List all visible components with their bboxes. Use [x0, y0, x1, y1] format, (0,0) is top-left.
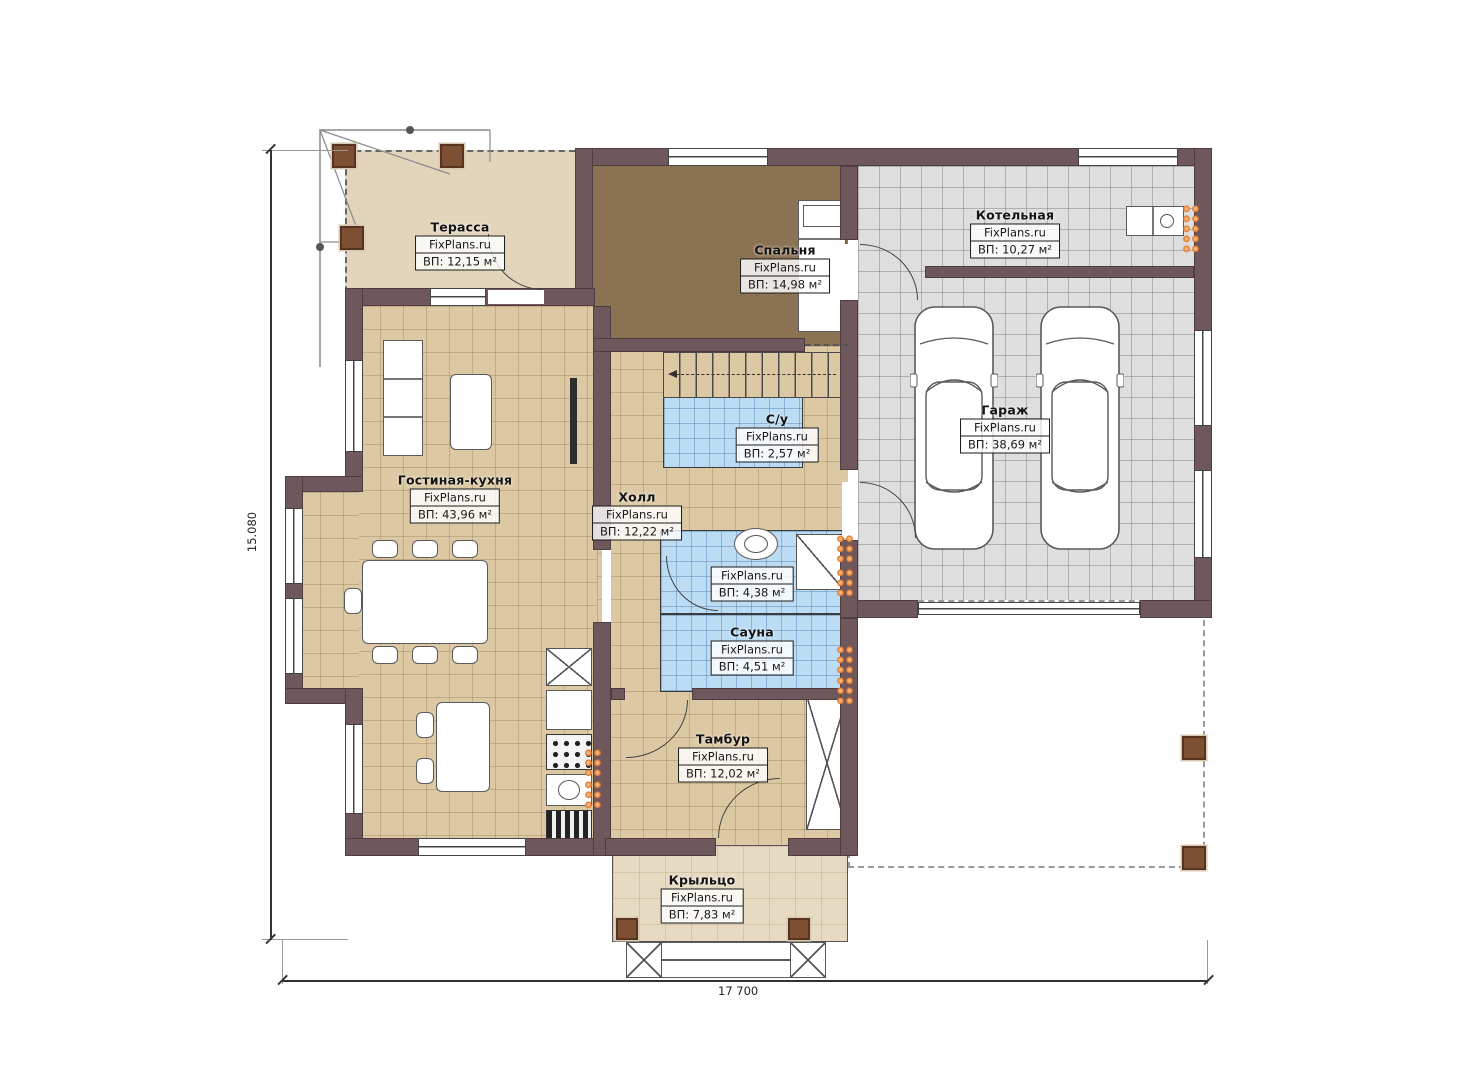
window-living-bottom [418, 838, 526, 856]
room-name: Терасса [415, 220, 505, 235]
room-label-sauna: Сауна FixPlans.ru ВП: 4,51 м² [711, 625, 794, 676]
kitchen-cabinet-x [546, 648, 592, 686]
radiator-symbol [584, 780, 602, 808]
column [440, 144, 464, 168]
sofa-cushion-line-1 [384, 378, 422, 380]
wall-core-right-b [840, 300, 858, 470]
wall-tambur-bottom-a [605, 838, 716, 856]
chair [416, 712, 434, 738]
column [1182, 736, 1206, 760]
brand-text: FixPlans.ru [741, 260, 829, 276]
brand-text: FixPlans.ru [662, 890, 743, 906]
wall-tambur-bottom-b [788, 838, 848, 856]
room-label-boiler: Котельная FixPlans.ru ВП: 10,27 м² [970, 208, 1060, 259]
radiator-symbol [836, 534, 854, 564]
wall-center-lower [593, 622, 611, 856]
room-label-terrace: Терасса FixPlans.ru ВП: 12,15 м² [415, 220, 505, 271]
staircase [663, 352, 846, 398]
window-living-left-1 [345, 360, 363, 452]
room-name: Спальня [740, 243, 830, 258]
porch-step-x-right [790, 942, 826, 978]
chair [372, 646, 398, 664]
radiator-symbol [836, 676, 854, 704]
sofa-cushion-line-2 [384, 416, 422, 418]
stairs-direction-line [676, 374, 836, 375]
opening-living-hall [602, 550, 611, 622]
window-bay-1 [285, 508, 303, 584]
boiler-unit [1126, 206, 1184, 236]
room-name: Котельная [970, 208, 1060, 223]
column [1182, 846, 1206, 870]
dimension-label-bottom: 17 700 [718, 984, 758, 998]
room-label-tambur: Тамбур FixPlans.ru ВП: 12,02 м² [678, 732, 768, 783]
wall-hall-tambur-a [611, 688, 625, 700]
side-table [436, 702, 490, 792]
room-name: Холл [592, 490, 682, 505]
wall-terrace-right [575, 148, 593, 306]
room-label-living-kitchen: Гостиная-кухня FixPlans.ru ВП: 43,96 м² [398, 473, 512, 524]
extension-line [262, 150, 348, 151]
room-area: ВП: 2,57 м² [737, 445, 818, 462]
extension-line [262, 939, 348, 940]
chair [344, 588, 362, 614]
brand-text: FixPlans.ru [737, 429, 818, 445]
column [340, 226, 364, 250]
room-name: Гараж [960, 403, 1050, 418]
column [616, 918, 638, 940]
window-boiler-top [1078, 148, 1178, 166]
chair [452, 646, 478, 664]
room-area: ВП: 7,83 м² [662, 906, 743, 923]
bed-pillow [803, 205, 841, 227]
kitchen-sink-bowl [558, 780, 580, 800]
room-label-bedroom: Спальня FixPlans.ru ВП: 14,98 м² [740, 243, 830, 294]
dimension-line-bottom [282, 980, 1208, 982]
brand-text: FixPlans.ru [712, 642, 793, 658]
coffee-table [450, 374, 492, 450]
radiator-symbol [836, 645, 854, 673]
column [332, 144, 356, 168]
brand-text: FixPlans.ru [712, 568, 793, 584]
room-label-porch: Крыльцо FixPlans.ru ВП: 7,83 м² [661, 873, 744, 924]
chair [452, 540, 478, 558]
room-label-garage: Гараж FixPlans.ru ВП: 38,69 м² [960, 403, 1050, 454]
room-area: ВП: 4,51 м² [712, 658, 793, 675]
garage-door-opening [918, 602, 1140, 615]
wall-boiler-garage [925, 266, 1194, 278]
brand-text: FixPlans.ru [971, 225, 1059, 241]
brand-text: FixPlans.ru [679, 749, 767, 765]
carport-dashed-area [848, 600, 1205, 868]
room-label-bathroom: FixPlans.ru ВП: 4,38 м² [711, 567, 794, 602]
window-garage-right-2 [1194, 470, 1212, 558]
radiator-symbol [836, 568, 854, 598]
room-area: ВП: 4,38 м² [712, 584, 793, 601]
room-name: Гостиная-кухня [398, 473, 512, 488]
room-area: ВП: 10,27 м² [971, 241, 1059, 258]
dining-table [362, 560, 488, 644]
brand-text: FixPlans.ru [593, 507, 681, 523]
boiler-divider [1152, 207, 1154, 235]
dimension-line-left [270, 150, 272, 940]
window-bedroom-top [668, 148, 768, 166]
porch-step-x-left [626, 942, 662, 978]
radiator-symbol [584, 748, 602, 776]
room-area: ВП: 14,98 м² [741, 276, 829, 293]
radiator-symbol [1182, 204, 1200, 254]
chair [412, 540, 438, 558]
bathroom-sink-inner [744, 535, 768, 553]
room-name: Сауна [711, 625, 794, 640]
tv-panel [570, 378, 577, 464]
floor-plan-canvas: Терасса FixPlans.ru ВП: 12,15 м² Спальня… [0, 0, 1473, 1080]
chair [372, 540, 398, 558]
column [788, 918, 810, 940]
door-gap-garage [842, 482, 856, 538]
chair [416, 758, 434, 784]
room-area: ВП: 12,02 м² [679, 765, 767, 782]
wall-core-right-a [840, 166, 858, 240]
window-living-left-2 [345, 724, 363, 814]
brand-text: FixPlans.ru [416, 237, 504, 253]
brand-text: FixPlans.ru [411, 490, 499, 506]
boiler-dial [1160, 214, 1174, 228]
room-area: ВП: 12,22 м² [593, 523, 681, 540]
room-name: Тамбур [678, 732, 768, 747]
wall-hall-tambur-b [692, 688, 848, 700]
room-area: ВП: 12,15 м² [416, 253, 504, 270]
wall-bedroom-hall [593, 338, 805, 352]
sofa [383, 340, 423, 456]
window-garage-right-1 [1194, 330, 1212, 426]
door-gap-boiler [842, 244, 856, 300]
room-name: С/у [736, 412, 819, 427]
bed-blanket-line [799, 238, 845, 240]
kitchen-cabinet [546, 690, 592, 730]
chair [412, 646, 438, 664]
room-name: Крыльцо [661, 873, 744, 888]
bedroom-opening-dashed [805, 344, 848, 346]
wall-garage-bottom-right [1140, 600, 1212, 618]
window-terrace-wall [430, 288, 486, 306]
room-area: ВП: 38,69 м² [961, 436, 1049, 453]
door-gap-terrace [488, 290, 544, 304]
room-label-hall: Холл FixPlans.ru ВП: 12,22 м² [592, 490, 682, 541]
stairs-arrow-icon [668, 370, 677, 378]
room-label-wc-small: С/у FixPlans.ru ВП: 2,57 м² [736, 412, 819, 463]
window-bay-2 [285, 598, 303, 674]
brand-text: FixPlans.ru [961, 420, 1049, 436]
wall-garage-bottom-left [848, 600, 918, 618]
room-area: ВП: 43,96 м² [411, 506, 499, 523]
dimension-label-left: 15.080 [245, 512, 259, 552]
